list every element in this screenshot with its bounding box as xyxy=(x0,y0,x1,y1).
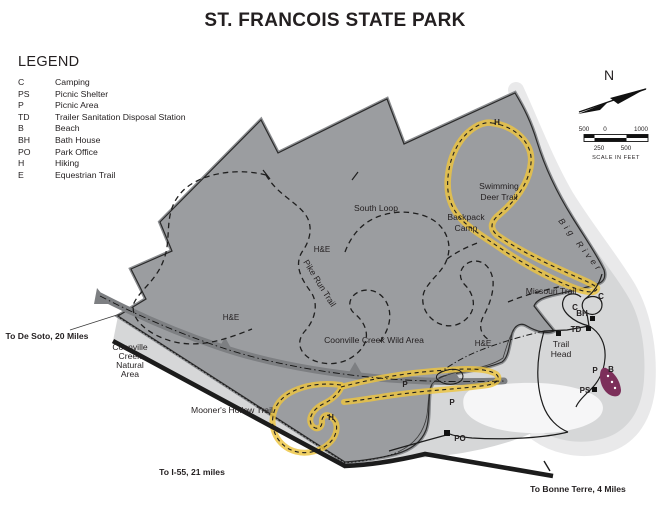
picnic-marker: P xyxy=(449,398,455,407)
svg-text:500: 500 xyxy=(621,145,632,152)
park-office-square xyxy=(444,430,450,436)
svg-text:250: 250 xyxy=(594,145,605,152)
missouri-trail-label: Missouri Trail xyxy=(526,286,577,296)
bath-house-square xyxy=(590,316,595,321)
swimming-deer-label: Deer Trail xyxy=(480,192,517,202)
to-de-soto-label: To De Soto, 20 Miles xyxy=(6,331,89,341)
park-office-marker: PO xyxy=(454,434,466,443)
south-loop-label: South Loop xyxy=(354,203,398,213)
to-bonne-terre-label: To Bonne Terre, 4 Miles xyxy=(530,484,626,494)
svg-text:SCALE IN FEET: SCALE IN FEET xyxy=(592,155,640,161)
coonville-natural-area-label: Area xyxy=(121,369,139,379)
scale-bar: 500 0 1000 250 500 SCALE IN FEET xyxy=(579,126,649,161)
trail-head-square xyxy=(556,331,561,336)
camping-marker: C xyxy=(598,292,604,301)
picnic-shelter-square xyxy=(592,387,597,392)
hiking-marker: H xyxy=(328,413,334,422)
he-label: H&E xyxy=(475,339,491,348)
trail-head-label: Head xyxy=(551,349,572,359)
swimming-deer-label: Swimming xyxy=(479,181,519,191)
picnic-marker: P xyxy=(592,366,598,375)
backpack-camp-label: Camp xyxy=(455,223,478,233)
park-map: South Loop Backpack Camp Swimming Deer T… xyxy=(0,0,670,507)
picnic-marker: P xyxy=(402,380,408,389)
park-map-page: ST. FRANCOIS STATE PARK LEGEND C Camping… xyxy=(0,0,670,507)
he-label: H&E xyxy=(223,313,239,322)
bath-house-marker: BH xyxy=(576,309,588,318)
he-label: H&E xyxy=(314,245,330,254)
backpack-camp-label: Backpack xyxy=(447,212,485,222)
coonville-wild-area-label: Coonville Creek Wild Area xyxy=(324,335,424,345)
trail-head-label: Trail xyxy=(553,339,569,349)
beach-marker: B xyxy=(608,365,614,374)
north-label: N xyxy=(604,67,614,83)
svg-text:0: 0 xyxy=(603,126,607,133)
hiking-marker: H xyxy=(494,118,500,127)
to-i55-label: To I-55, 21 miles xyxy=(159,467,225,477)
trailer-disposal-square xyxy=(586,326,591,331)
svg-text:1000: 1000 xyxy=(634,126,649,133)
trailer-disposal-marker: TD xyxy=(571,325,582,334)
svg-text:500: 500 xyxy=(579,126,590,133)
picnic-shelter-marker: PS xyxy=(580,386,591,395)
mooners-hollow-label: Mooner's Hollow Trail xyxy=(191,405,273,415)
north-arrow-icon: N xyxy=(578,67,647,114)
